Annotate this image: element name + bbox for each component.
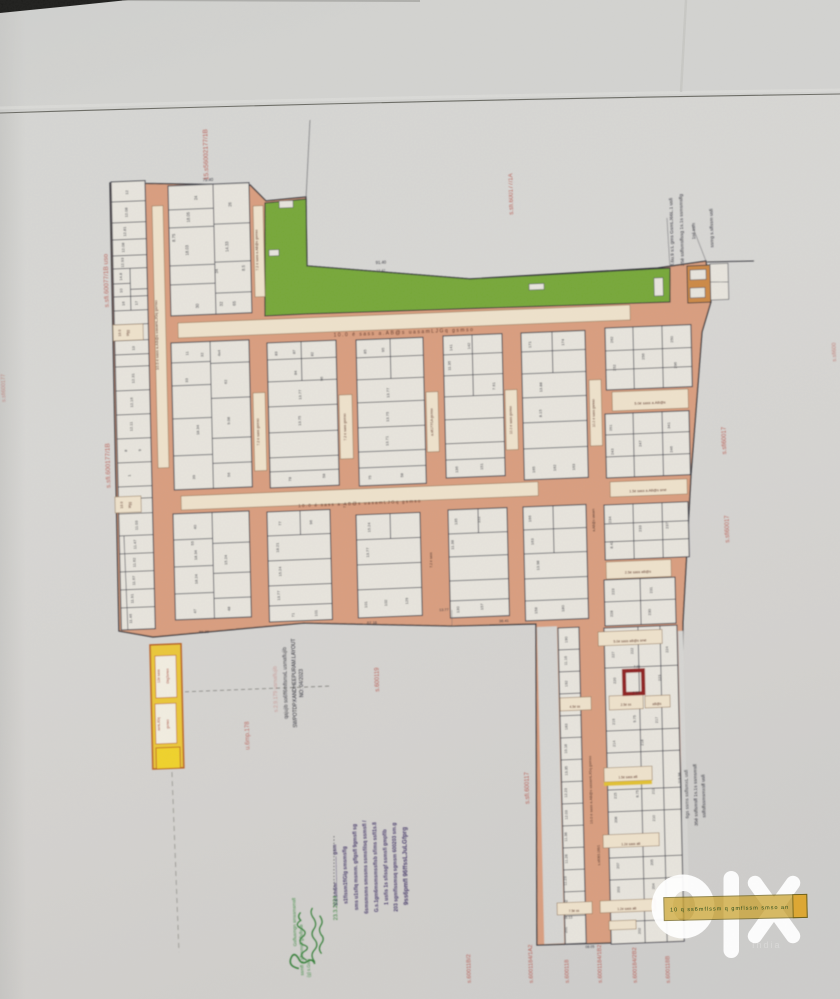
svg-text:India: India <box>752 940 782 950</box>
